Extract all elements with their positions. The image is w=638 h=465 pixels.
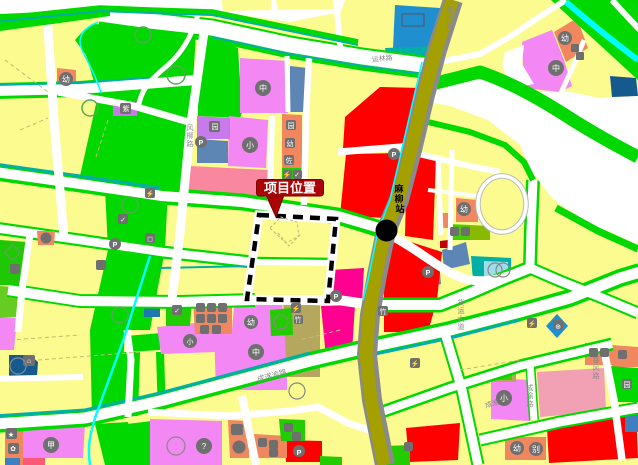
svg-text:麻: 麻 (393, 183, 404, 194)
svg-text:别: 别 (532, 445, 540, 454)
svg-text:★: ★ (8, 431, 14, 439)
svg-text:佐: 佐 (286, 156, 293, 165)
svg-text:⌂: ⌂ (27, 358, 31, 365)
svg-text:甲: 甲 (47, 441, 55, 450)
svg-text:⚡: ⚡ (146, 189, 155, 198)
svg-text:P: P (297, 450, 302, 457)
svg-text:幼: 幼 (62, 74, 70, 84)
svg-text:道: 道 (458, 322, 465, 331)
svg-text:⚡: ⚡ (528, 319, 537, 328)
svg-text:成: 成 (527, 383, 534, 392)
svg-text:园: 园 (624, 381, 631, 389)
svg-text:园: 园 (212, 123, 219, 131)
svg-text:竹: 竹 (380, 307, 387, 316)
svg-text:奥: 奥 (447, 5, 454, 14)
svg-text:✿: ✿ (10, 446, 16, 453)
svg-text:幼: 幼 (513, 443, 521, 453)
svg-text:⚡: ⚡ (292, 304, 301, 313)
svg-text:柳: 柳 (394, 193, 403, 204)
svg-text:路: 路 (527, 399, 534, 408)
svg-text:大: 大 (458, 314, 465, 323)
svg-text:路: 路 (447, 21, 454, 30)
svg-text:风: 风 (187, 124, 194, 132)
svg-text:小: 小 (246, 141, 254, 150)
svg-text:运: 运 (458, 307, 465, 315)
svg-text:中: 中 (252, 347, 260, 357)
svg-text:园: 园 (288, 122, 295, 130)
svg-text:路: 路 (593, 371, 600, 380)
svg-text:✓: ✓ (294, 172, 300, 179)
svg-text:竹: 竹 (295, 315, 302, 324)
svg-text:幼: 幼 (247, 317, 255, 327)
svg-text:P: P (334, 294, 339, 301)
svg-text:幼: 幼 (460, 204, 468, 214)
svg-text:紫: 紫 (123, 105, 130, 113)
svg-text:站: 站 (395, 203, 404, 214)
svg-text:✓: ✓ (120, 217, 126, 224)
svg-text:✓: ✓ (174, 308, 180, 315)
svg-text:P: P (426, 270, 431, 277)
svg-text:P: P (113, 242, 118, 249)
svg-text:?: ? (202, 442, 207, 451)
svg-text:⊕: ⊕ (555, 324, 561, 331)
svg-text:风: 风 (593, 364, 600, 372)
svg-text:幼: 幼 (561, 33, 569, 43)
svg-text:◻: ◻ (147, 236, 153, 243)
svg-text:小: 小 (500, 394, 508, 403)
svg-text:货: 货 (458, 298, 465, 307)
svg-text:⚡: ⚡ (411, 359, 420, 368)
svg-text:柳: 柳 (447, 13, 454, 22)
svg-text:P: P (392, 152, 397, 159)
svg-text:P: P (199, 140, 204, 147)
svg-text:项目位置: 项目位置 (264, 181, 316, 196)
svg-text:路: 路 (187, 139, 194, 148)
svg-text:柳: 柳 (187, 131, 194, 140)
svg-text:小: 小 (187, 337, 194, 346)
svg-text:⚡: ⚡ (283, 170, 292, 179)
svg-text:中: 中 (552, 63, 560, 73)
svg-text:渝: 渝 (527, 391, 534, 400)
svg-text:中: 中 (259, 83, 267, 93)
svg-text:幼: 幼 (287, 139, 294, 148)
